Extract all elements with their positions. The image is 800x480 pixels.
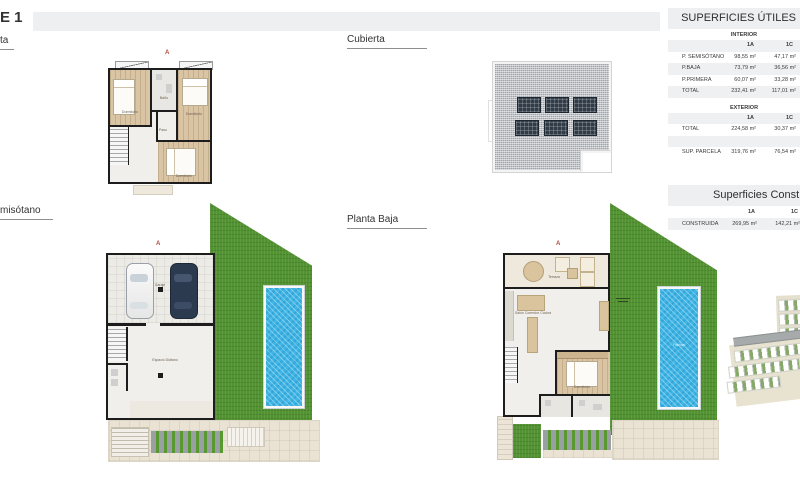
bed <box>182 78 208 106</box>
section-header-exterior: EXTERIOR <box>688 102 800 113</box>
exterior-steps <box>111 427 149 457</box>
table-column-header: 1A 1C <box>668 206 800 218</box>
section-marker-a: A <box>156 241 160 247</box>
bedroom: Dormitorio <box>555 350 610 394</box>
label-planta-primera: ta <box>0 35 14 50</box>
bedroom-1: Dormitorio <box>110 70 150 125</box>
stairs <box>505 347 518 383</box>
lounge-chair <box>580 272 595 287</box>
stepping-stones <box>543 430 611 450</box>
lounge-chair <box>580 257 595 272</box>
porch <box>130 401 213 418</box>
dining-table <box>517 295 545 311</box>
terrace: Terraza <box>505 255 608 289</box>
swimming-pool <box>264 286 304 408</box>
section-marker-a: A <box>165 50 169 56</box>
table-row-construida: CONSTRUIDA 269,95 m² 142,21 m² <box>668 218 800 230</box>
table-row-total: TOTAL 224,58 m² 30,37 m² <box>668 124 800 136</box>
stairs <box>110 127 129 165</box>
room-label: Piscina <box>660 343 698 347</box>
roof-surface <box>493 62 611 172</box>
label-cubierta: Cubierta <box>347 34 427 49</box>
solar-panel <box>573 97 597 113</box>
table-row-total: TOTAL 232,41 m² 117,01 m² <box>668 86 800 98</box>
sofa <box>599 301 609 331</box>
plan-cubierta <box>488 60 618 178</box>
table-superficies-construidas: Superficies Construidas 1A 1C CONSTRUIDA… <box>668 185 800 230</box>
table-title: SUPERFICIES ÚTILES <box>668 8 800 29</box>
site-plan <box>733 269 800 272</box>
table-row: P.PRIMERA 60,07 m² 33,28 m² <box>668 75 800 87</box>
garden-label-smudge <box>618 301 628 302</box>
paved-terrace <box>612 420 719 460</box>
kitchen-counter <box>505 291 514 341</box>
table-row: P.BAJA 73,79 m² 36,56 m² <box>668 63 800 75</box>
bed <box>166 148 196 176</box>
room-label: Dormitorio <box>559 385 605 389</box>
room-label: Salón Comedor Cocina <box>511 311 555 315</box>
bathroom: Baño <box>152 70 176 110</box>
store-room <box>108 363 128 391</box>
room-label: Paso <box>150 128 176 132</box>
semisotano-house-outline: Garaje Espacio Diáfano <box>106 253 215 420</box>
table-row-parcela: SUP. PARCELA 319,76 m² 76,54 m² <box>668 147 800 159</box>
label-semisotano: misótano <box>0 205 53 220</box>
roof-notch <box>581 151 611 172</box>
room-label: Dormitorio <box>162 174 206 178</box>
bathrooms <box>539 394 610 417</box>
lawn-patch <box>513 424 541 458</box>
table-row-empty <box>668 136 800 148</box>
kitchen-island <box>527 317 538 353</box>
swimming-pool: Piscina <box>658 287 700 409</box>
terrace-strip <box>133 185 173 195</box>
paved-yard <box>108 420 320 462</box>
label-planta-baja: Planta Baja <box>347 214 427 229</box>
plan-primera: A Dormitorio Baño Dormitorio Dormitorio <box>95 50 240 195</box>
bath-fixture <box>166 84 172 93</box>
exterior-steps <box>497 416 513 460</box>
room-label: Terraza <box>539 275 569 279</box>
bedroom-2: Dormitorio <box>178 70 210 140</box>
page-title: E 1 <box>0 9 23 26</box>
site-houses-row <box>778 299 800 312</box>
stepping-stones <box>151 431 223 453</box>
table-title: Superficies Construidas <box>668 185 800 206</box>
bedroom-3: Dormitorio <box>158 142 210 182</box>
room-label: Dormitorio <box>110 110 150 114</box>
site-houses-row <box>779 313 800 326</box>
table-row: P. SEMISÓTANO 98,55 m² 47,17 m² <box>668 52 800 64</box>
room-label: Dormitorio <box>178 112 210 116</box>
table-column-header: 1A 1C <box>668 113 800 125</box>
table-superficies-utiles: SUPERFICIES ÚTILES INTERIOR 1A 1C P. SEM… <box>668 8 800 159</box>
section-marker-a: A <box>556 241 560 247</box>
path <box>543 450 612 458</box>
bath-fixture <box>156 74 162 80</box>
room-label: Espacio Diáfano <box>130 358 200 362</box>
solar-panel <box>544 120 568 136</box>
wardrobe <box>557 352 608 359</box>
baja-house-outline: Terraza Salón Comedor Cocina Dormitorio <box>503 253 610 417</box>
car-white <box>126 263 154 319</box>
garden-label-smudge <box>616 298 630 299</box>
solar-panel <box>545 97 569 113</box>
solar-panel <box>515 120 539 136</box>
car-dark <box>170 263 198 319</box>
section-header-interior: INTERIOR <box>688 29 800 40</box>
bed <box>566 361 598 387</box>
solar-panel <box>573 120 597 136</box>
table-column-header: 1A 1C <box>668 40 800 52</box>
header-band <box>33 12 660 31</box>
driveway <box>227 427 265 447</box>
plan-sheet: E 1 ta Cubierta misótano Planta Baja A D… <box>0 0 800 480</box>
primera-house-outline: Dormitorio Baño Dormitorio Dormitorio Pa… <box>108 68 212 184</box>
room-label: Baño <box>152 96 176 100</box>
stairs <box>108 327 128 361</box>
solar-panel <box>517 97 541 113</box>
